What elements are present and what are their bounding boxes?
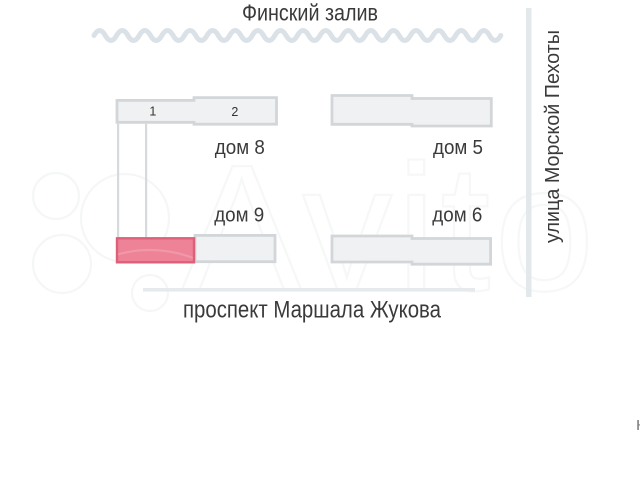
svg-text:дом 8: дом 8 — [215, 136, 265, 159]
svg-text:Финский залив: Финский залив — [242, 0, 378, 26]
svg-text:улица Морской Пехоты: улица Морской Пехоты — [542, 30, 564, 243]
svg-text:дом 6: дом 6 — [432, 204, 482, 227]
svg-text:дом 9: дом 9 — [214, 203, 264, 226]
svg-text:2: 2 — [231, 105, 238, 119]
svg-text:1: 1 — [149, 105, 156, 119]
svg-text:дом 5: дом 5 — [433, 136, 483, 159]
svg-text:проспект Маршала Жукова: проспект Маршала Жукова — [183, 297, 442, 324]
svg-text:н: н — [636, 414, 640, 434]
